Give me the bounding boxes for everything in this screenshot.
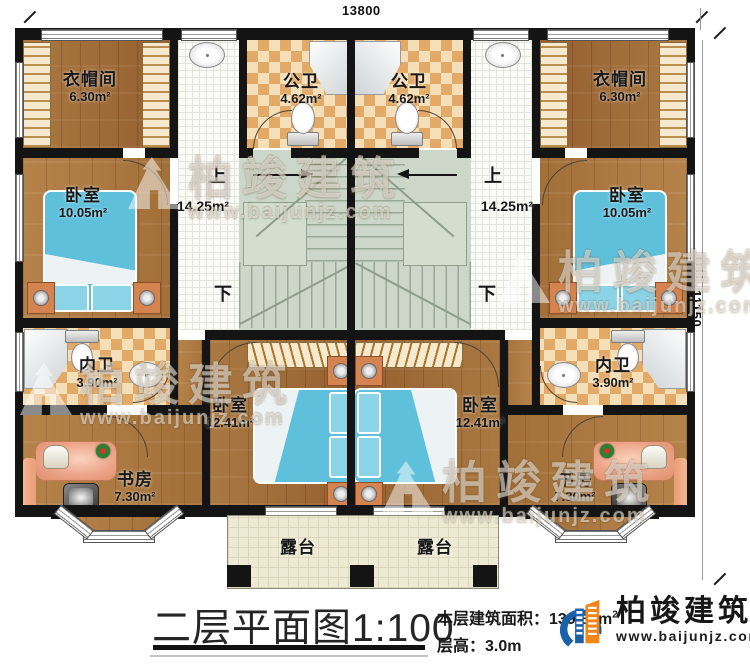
dimension-tick [695, 11, 708, 24]
watermark-logo-icon [706, 455, 750, 507]
nightstand [655, 282, 683, 314]
room-name: 公卫 [256, 72, 346, 92]
wall [23, 148, 123, 158]
bedroom-small-label: 卧室 10.05m² [577, 186, 677, 220]
terrace-label: 露台 [400, 538, 470, 558]
room-area: 3.90m² [563, 376, 663, 391]
room-name: 衣帽间 [570, 70, 670, 90]
pillow [91, 284, 133, 312]
wardrobe-rail [540, 42, 568, 148]
toilet-tank [65, 330, 99, 343]
extension-line [700, 8, 701, 30]
room-area: 4.62m² [364, 92, 454, 107]
stair-up-label: 上 [201, 162, 233, 188]
right-unit: 衣帽间 6.30m² 公卫 4.62m² 卧室 10.05m² 内卫 3.90m… [347, 28, 695, 550]
window [686, 174, 695, 262]
pillow [577, 284, 619, 312]
title-underline-light [150, 655, 428, 657]
toilet-icon [291, 102, 315, 134]
wall [170, 204, 178, 415]
window [547, 29, 669, 41]
dimension-tick [713, 573, 726, 586]
plan-title-text: 二层平面图 [152, 607, 352, 650]
room-area: 12.41m² [180, 416, 280, 431]
floor-plan-page: 13800 11150 [0, 0, 750, 666]
window [15, 332, 24, 392]
room-name: 卧室 [577, 186, 677, 206]
terrace-label: 露台 [263, 538, 333, 558]
blanket [575, 254, 665, 284]
stair-area-label: 14.25m² [469, 198, 545, 214]
room-name: 卧室 [33, 186, 133, 206]
brand-logo-icon [556, 596, 608, 654]
terrace-pillar [473, 565, 497, 587]
room-name: 卧室 [180, 396, 280, 416]
ensuite-bath-label: 内卫 3.90m² [563, 356, 663, 390]
floor-height-label: 层高： [437, 638, 485, 655]
brand-name: 柏竣建筑 [616, 596, 750, 628]
room-area: 7.30m² [85, 490, 185, 505]
stair-arrow-head [397, 169, 409, 179]
wall [23, 405, 107, 415]
room-area: 10.05m² [33, 206, 133, 221]
title-underline [153, 645, 425, 650]
wall [355, 330, 505, 340]
desk-lamp [641, 445, 667, 469]
nightstand [133, 282, 161, 314]
sink-icon [189, 42, 225, 68]
stair-down-label: 下 [471, 280, 503, 306]
stair-up-label: 上 [477, 162, 509, 188]
center-wall [347, 28, 355, 517]
study-label: 书房 7.30m² [525, 470, 625, 504]
dimension-tick [713, 27, 726, 40]
window [181, 29, 237, 41]
brand-site: www.baijunjz.com [616, 628, 750, 644]
window [15, 62, 24, 138]
public-bath-label: 公卫 4.62m² [364, 72, 454, 106]
blanket [45, 254, 135, 284]
wall [540, 318, 687, 328]
room-name: 书房 [525, 470, 625, 490]
stair-arrow [405, 174, 457, 176]
extension-line [702, 40, 703, 580]
wall [355, 148, 419, 158]
window [15, 174, 24, 262]
desk-lamp [43, 445, 69, 469]
wall [239, 148, 253, 158]
room-area: 7.30m² [525, 490, 625, 505]
window [41, 29, 163, 41]
cloakroom-label: 衣帽间 6.30m² [40, 70, 140, 104]
window [686, 332, 695, 392]
toilet-tank [611, 330, 645, 343]
room-name: 书房 [85, 470, 185, 490]
dimension-tick [23, 11, 36, 24]
wall [532, 40, 540, 150]
bedroom-large-label: 卧室 12.41m² [430, 396, 530, 430]
terrace-pillar [350, 565, 374, 587]
terrace-pillar [227, 565, 251, 587]
left-unit: 衣帽间 6.30m² 公卫 4.62m² 卧室 10.05m² 内卫 3.90m… [15, 28, 363, 550]
wall [587, 148, 687, 158]
room-area: 3.90m² [47, 376, 147, 391]
room-area: 6.30m² [40, 90, 140, 105]
pillow [357, 392, 381, 434]
wall [205, 330, 355, 340]
nightstand [355, 356, 383, 386]
top-dimension-label: 13800 [342, 3, 381, 18]
sink-icon [485, 42, 521, 68]
window [686, 62, 695, 138]
ensuite-bath-label: 内卫 3.90m² [47, 356, 147, 390]
pillow [357, 436, 381, 478]
room-area: 4.62m² [256, 92, 346, 107]
stair-landing [243, 202, 307, 266]
room-name: 卧室 [430, 396, 530, 416]
wall [457, 148, 471, 158]
room-area: 6.30m² [570, 90, 670, 105]
wall [532, 204, 540, 415]
room-name: 衣帽间 [40, 70, 140, 90]
stair-arrow-head [301, 169, 313, 179]
wall [145, 148, 178, 158]
room-name: 露台 [400, 538, 470, 558]
nightstand [355, 482, 383, 506]
wall [291, 148, 355, 158]
stair-landing [403, 202, 467, 266]
watermark: 柏竣建筑 www.baijunjz.com [706, 440, 750, 522]
stair-arrow [253, 174, 305, 176]
room-name: 公卫 [364, 72, 454, 92]
wardrobe-rail [142, 42, 170, 148]
brand-logo: 柏竣建筑 www.baijunjz.com [556, 596, 750, 654]
wall [603, 405, 687, 415]
floor-area-label: 本层建筑面积： [437, 611, 549, 628]
floor-height-text: 层高：3.0m [437, 632, 521, 656]
room-name: 内卫 [47, 356, 147, 376]
wall [463, 40, 471, 158]
wall [23, 318, 170, 328]
window-seat [674, 458, 687, 510]
stair-area-label: 14.25m² [165, 198, 241, 214]
cloakroom-label: 衣帽间 6.30m² [570, 70, 670, 104]
wall [239, 40, 247, 158]
study-label: 书房 7.30m² [85, 470, 185, 504]
wall [532, 148, 565, 158]
nightstand [27, 282, 55, 314]
public-bath-label: 公卫 4.62m² [256, 72, 346, 106]
room-area: 10.05m² [577, 206, 677, 221]
room-name: 露台 [263, 538, 333, 558]
room-area: 12.41m² [430, 416, 530, 431]
nightstand [549, 282, 577, 314]
window-seat [23, 458, 36, 510]
floor-height-value: 3.0m [485, 638, 521, 655]
wall [170, 40, 178, 150]
stair-down-label: 下 [207, 280, 239, 306]
room-name: 内卫 [563, 356, 663, 376]
bedroom-small-label: 卧室 10.05m² [33, 186, 133, 220]
window [473, 29, 529, 41]
bedroom-large-label: 卧室 12.41m² [180, 396, 280, 430]
toilet-icon [395, 102, 419, 134]
